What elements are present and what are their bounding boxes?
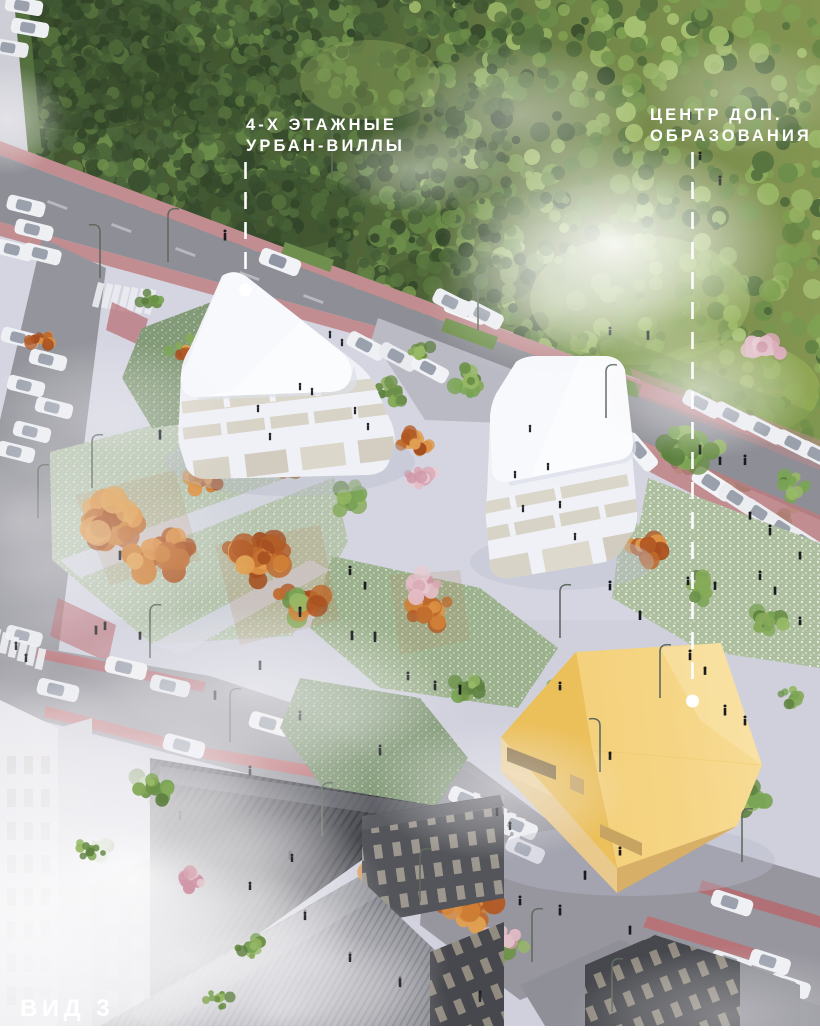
svg-text:УРБАН-ВИЛЛЫ: УРБАН-ВИЛЛЫ (246, 137, 405, 155)
svg-text:4-Х ЭТАЖНЫЕ: 4-Х ЭТАЖНЫЕ (246, 116, 397, 134)
svg-text:ОБРАЗОВАНИЯ: ОБРАЗОВАНИЯ (650, 127, 812, 145)
svg-text:ВИД 3: ВИД 3 (20, 995, 114, 1022)
svg-text:ЦЕНТР ДОП.: ЦЕНТР ДОП. (650, 106, 783, 124)
